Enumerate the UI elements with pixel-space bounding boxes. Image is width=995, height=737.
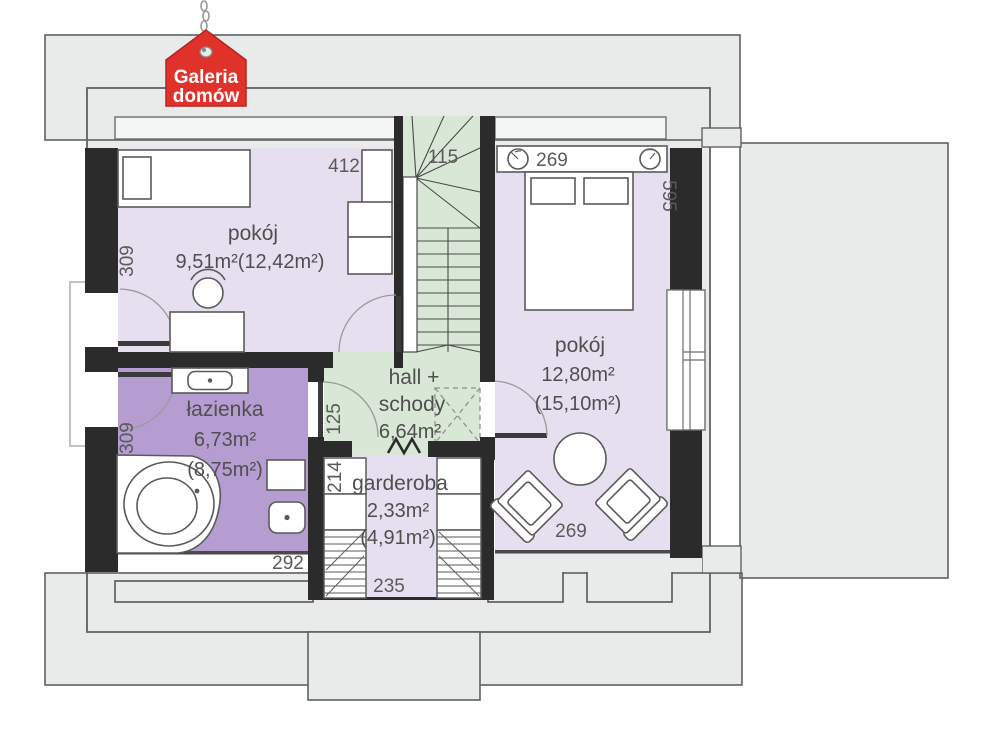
label-pokoj-r-area: 12,80m² bbox=[541, 364, 615, 386]
dim-309-bottom: 309 bbox=[117, 422, 138, 454]
label-hall-area: 6,64m² bbox=[379, 421, 442, 443]
label-garderoba-area-gross: (4,91m²) bbox=[360, 527, 436, 549]
knee-wall-line-right bbox=[495, 550, 670, 554]
knee-wall-strip-right bbox=[483, 553, 702, 572]
label-garderoba-area: 2,33m² bbox=[367, 500, 430, 522]
round-table bbox=[554, 433, 606, 485]
floor-plan-page: pokój 9,51m²(12,42m²) pokój 12,80m² (15,… bbox=[0, 0, 995, 737]
washbasin bbox=[172, 368, 248, 393]
label-lazienka-area: 6,73m² bbox=[194, 429, 257, 451]
dim-309-top: 309 bbox=[117, 245, 138, 277]
roof-window-strip-left bbox=[115, 117, 395, 139]
dim-125: 125 bbox=[324, 403, 345, 435]
logo-hole bbox=[200, 47, 212, 57]
wardrobe bbox=[362, 150, 392, 203]
label-hall-name2: schody bbox=[379, 393, 446, 416]
label-hall-name1: hall + bbox=[389, 366, 440, 389]
dim-115: 115 bbox=[428, 147, 458, 168]
label-lazienka-area-gross: (8,75m²) bbox=[187, 459, 263, 481]
desk bbox=[170, 312, 244, 352]
bottom-window-left bbox=[115, 581, 313, 602]
dim-292: 292 bbox=[272, 553, 304, 574]
single-bed bbox=[118, 150, 250, 207]
double-bed bbox=[525, 172, 633, 310]
roof-window-strip-right bbox=[495, 117, 666, 139]
bathroom-cabinet bbox=[267, 460, 305, 490]
dim-269-bottom: 269 bbox=[555, 521, 587, 542]
label-pokoj-r-area-gross: (15,10m²) bbox=[535, 393, 622, 415]
logo-line1: Galeria bbox=[174, 67, 239, 88]
label-pokoj-r-name: pokój bbox=[555, 334, 605, 357]
logo: Galeria domów bbox=[166, 1, 246, 107]
shelf-unit bbox=[348, 202, 392, 274]
window-right-wall bbox=[667, 290, 705, 430]
dim-269-top: 269 bbox=[536, 150, 568, 171]
toilet bbox=[269, 502, 305, 533]
label-garderoba-name: garderoba bbox=[352, 472, 448, 495]
label-pokoj-tl-area: 9,51m²(12,42m²) bbox=[176, 251, 325, 273]
label-pokoj-tl-name: pokój bbox=[228, 222, 278, 245]
logo-line2: domów bbox=[173, 86, 240, 107]
logo-pin bbox=[202, 48, 206, 52]
radiator-dimension-bar bbox=[497, 146, 667, 172]
dim-595: 595 bbox=[658, 180, 679, 212]
dim-214: 214 bbox=[325, 461, 346, 493]
dim-412: 412 bbox=[328, 156, 360, 177]
label-lazienka-name: łazienka bbox=[186, 398, 263, 421]
floor-plan: pokój 9,51m²(12,42m²) pokój 12,80m² (15,… bbox=[0, 0, 995, 737]
dim-235: 235 bbox=[373, 576, 405, 597]
